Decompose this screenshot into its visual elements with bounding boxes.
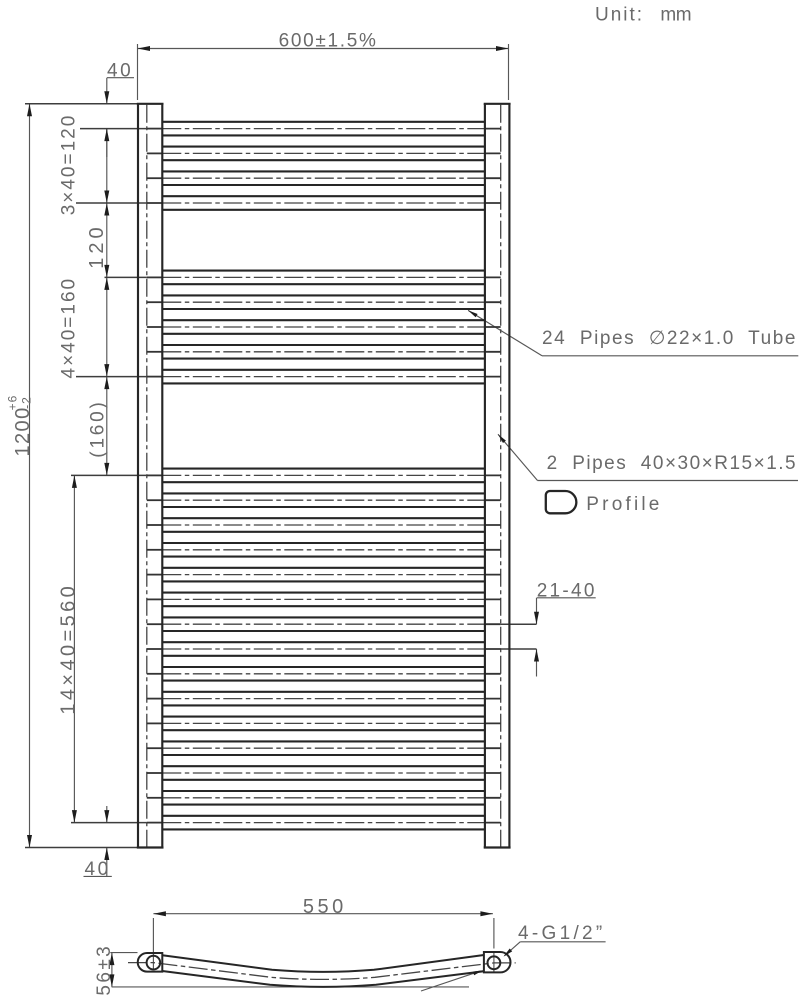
svg-text:Profile: Profile: [586, 494, 662, 515]
svg-text:mm: mm: [660, 5, 691, 26]
svg-text:56±3: 56±3: [94, 944, 115, 996]
svg-text:120: 120: [86, 223, 108, 268]
svg-text:24 Pipes ∅22×1.0 Tube: 24 Pipes ∅22×1.0 Tube: [542, 328, 797, 349]
svg-text:(160): (160): [88, 399, 109, 457]
svg-text:1200: 1200: [12, 406, 34, 456]
svg-text:4×40=160: 4×40=160: [59, 277, 80, 379]
svg-text:40: 40: [107, 61, 133, 82]
svg-text:40: 40: [85, 859, 111, 880]
svg-text:3×40=120: 3×40=120: [59, 114, 80, 216]
svg-text:-2: -2: [20, 396, 34, 409]
svg-text:+6: +6: [6, 395, 20, 411]
svg-text:550: 550: [303, 896, 347, 918]
svg-text:14×40=560: 14×40=560: [58, 583, 80, 715]
svg-text:600±1.5%: 600±1.5%: [279, 31, 378, 52]
svg-text:Unit:: Unit:: [595, 5, 644, 26]
svg-text:4-G1/2”: 4-G1/2”: [518, 923, 606, 944]
svg-text:21-40: 21-40: [537, 581, 597, 602]
svg-text:2 Pipes 40×30×R15×1.5: 2 Pipes 40×30×R15×1.5: [547, 453, 798, 474]
